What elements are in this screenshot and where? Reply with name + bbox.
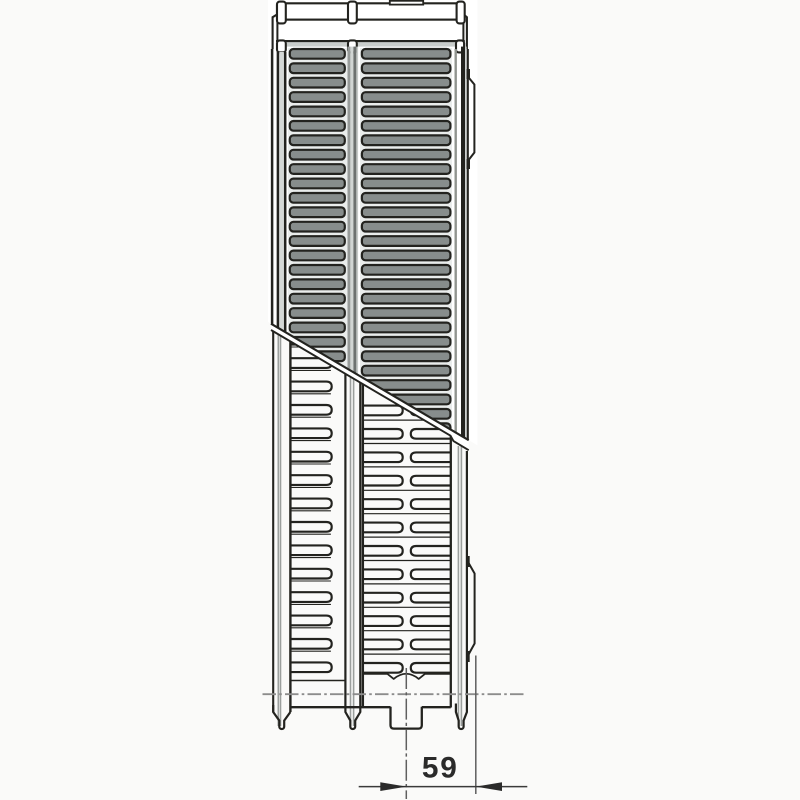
- svg-text:59: 59: [422, 751, 459, 784]
